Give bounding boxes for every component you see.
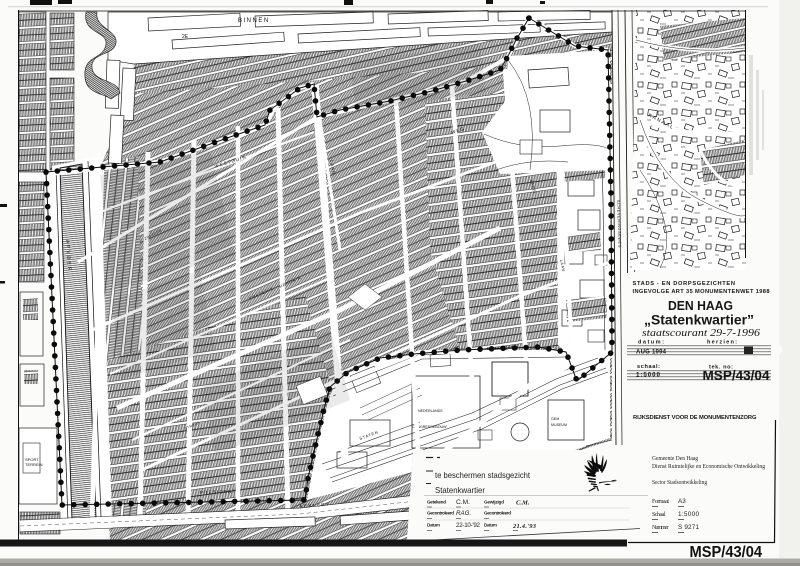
- svg-text:te beschermen stadsgezicht: te beschermen stadsgezicht: [435, 471, 531, 480]
- svg-text:Sector Stadsontwikkeling: Sector Stadsontwikkeling: [652, 479, 708, 486]
- svg-text:C.M.: C.M.: [456, 499, 470, 506]
- svg-text:RAG.: RAG.: [456, 510, 471, 517]
- svg-text:INGEVOLGE ART 35 MONUMENTENWET: INGEVOLGE ART 35 MONUMENTENWET 1988: [633, 289, 770, 295]
- svg-text:Gemeente Den Haag: Gemeente Den Haag: [652, 455, 699, 462]
- svg-text:„Statenkwartier”: „Statenkwartier”: [644, 313, 754, 328]
- svg-text:21.4.'93: 21.4.'93: [512, 523, 537, 530]
- svg-text:2E: 2E: [182, 34, 189, 40]
- svg-text:S 9271: S 9271: [678, 524, 699, 531]
- svg-text:Schaal: Schaal: [652, 512, 666, 518]
- svg-text:Formaat: Formaat: [652, 499, 669, 505]
- svg-text:TERREIN: TERREIN: [25, 462, 43, 467]
- svg-text:Gewijzigd: Gewijzigd: [484, 500, 504, 505]
- svg-text:RIJKSDIENST VOOR DE MONUMENTEN: RIJKSDIENST VOOR DE MONUMENTENZORG: [633, 415, 757, 421]
- svg-text:Datum: Datum: [484, 523, 497, 528]
- svg-text:Datum: Datum: [427, 523, 440, 528]
- svg-text:Gecontroleerd: Gecontroleerd: [484, 511, 511, 516]
- svg-text:DEN HAAG: DEN HAAG: [668, 299, 733, 313]
- svg-text:herzien:: herzien:: [707, 340, 737, 346]
- svg-text:datum:: datum:: [638, 340, 664, 346]
- svg-text:C.M.: C.M.: [516, 500, 530, 507]
- svg-text:NEDERLANDS: NEDERLANDS: [418, 409, 443, 413]
- svg-text:MSP/43/04: MSP/43/04: [703, 367, 770, 383]
- svg-text:GEM: GEM: [551, 417, 559, 421]
- svg-text:1:5000: 1:5000: [636, 372, 661, 379]
- svg-text:AUG 1994: AUG 1994: [636, 350, 667, 356]
- svg-text:Getekend: Getekend: [427, 500, 446, 505]
- svg-text:STADS - EN DORPSGEZICHTEN: STADS - EN DORPSGEZICHTEN: [633, 281, 736, 287]
- svg-text:Dienst Ruimtelijke en Economis: Dienst Ruimtelijke en Economische Ontwik…: [652, 463, 766, 470]
- svg-text:Gecontroleerd: Gecontroleerd: [427, 511, 454, 516]
- svg-text:staatscourant 29-7-1996: staatscourant 29-7-1996: [642, 328, 761, 339]
- svg-text:A3: A3: [678, 498, 686, 505]
- svg-text:1:5000: 1:5000: [678, 511, 699, 518]
- svg-text:MSP/43/04: MSP/43/04: [690, 544, 763, 561]
- svg-text:22-10-'92: 22-10-'92: [456, 522, 481, 529]
- svg-text:Nummer: Nummer: [652, 525, 669, 531]
- svg-text:schaal:: schaal:: [637, 364, 660, 370]
- svg-text:MUSEUM: MUSEUM: [551, 423, 567, 427]
- svg-text:BINNEN: BINNEN: [238, 18, 270, 24]
- svg-text:Statenkwartier: Statenkwartier: [435, 486, 485, 495]
